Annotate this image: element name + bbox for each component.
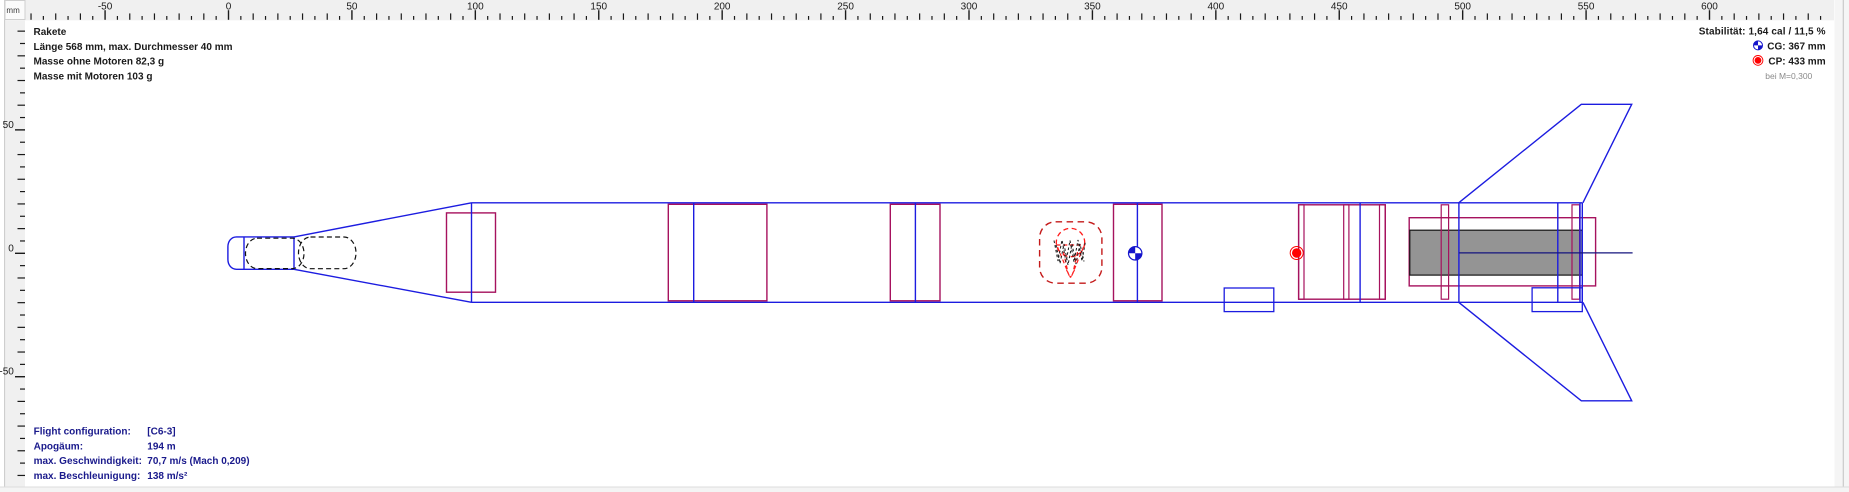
svg-text:138 m/s²: 138 m/s² [147,471,188,482]
svg-text:-50: -50 [0,367,14,378]
svg-text:max. Beschleunigung:: max. Beschleunigung: [34,471,141,482]
svg-text:Masse mit Motoren 103 g: Masse mit Motoren 103 g [34,71,153,82]
svg-text:mm: mm [6,6,20,15]
svg-text:0: 0 [226,1,232,12]
svg-text:Flight configuration:: Flight configuration: [34,427,131,438]
svg-text:250: 250 [837,1,854,12]
svg-text:200: 200 [714,1,731,12]
svg-text:550: 550 [1578,1,1595,12]
svg-text:600: 600 [1701,1,1718,12]
svg-text:500: 500 [1454,1,1471,12]
svg-text:max. Geschwindigkeit:: max. Geschwindigkeit: [34,456,142,467]
svg-text:Länge 568 mm, max. Durchmesser: Länge 568 mm, max. Durchmesser 40 mm [34,42,233,53]
svg-text:150: 150 [590,1,607,12]
svg-text:bei M=0,300: bei M=0,300 [1765,71,1812,81]
svg-text:Apogäum:: Apogäum: [34,441,83,452]
svg-text:CP: 433 mm: CP: 433 mm [1768,57,1825,68]
svg-text:Stabilität: 1,64 cal / 11,5 %: Stabilität: 1,64 cal / 11,5 % [1699,27,1826,38]
svg-text:50: 50 [3,120,15,131]
svg-text:Masse ohne Motoren 82,3 g: Masse ohne Motoren 82,3 g [34,57,165,68]
svg-text:400: 400 [1207,1,1224,12]
svg-text:Rakete: Rakete [34,27,67,38]
svg-text:450: 450 [1331,1,1348,12]
svg-text:50: 50 [346,1,358,12]
svg-text:70,7 m/s (Mach 0,209): 70,7 m/s (Mach 0,209) [147,456,249,467]
svg-text:300: 300 [961,1,978,12]
svg-text:350: 350 [1084,1,1101,12]
svg-text:0: 0 [8,243,14,254]
svg-text:CG: 367 mm: CG: 367 mm [1767,42,1825,53]
svg-text:100: 100 [467,1,484,12]
svg-text:-50: -50 [98,1,113,12]
svg-text:194 m: 194 m [147,441,175,452]
svg-text:[C6-3]: [C6-3] [147,427,175,438]
